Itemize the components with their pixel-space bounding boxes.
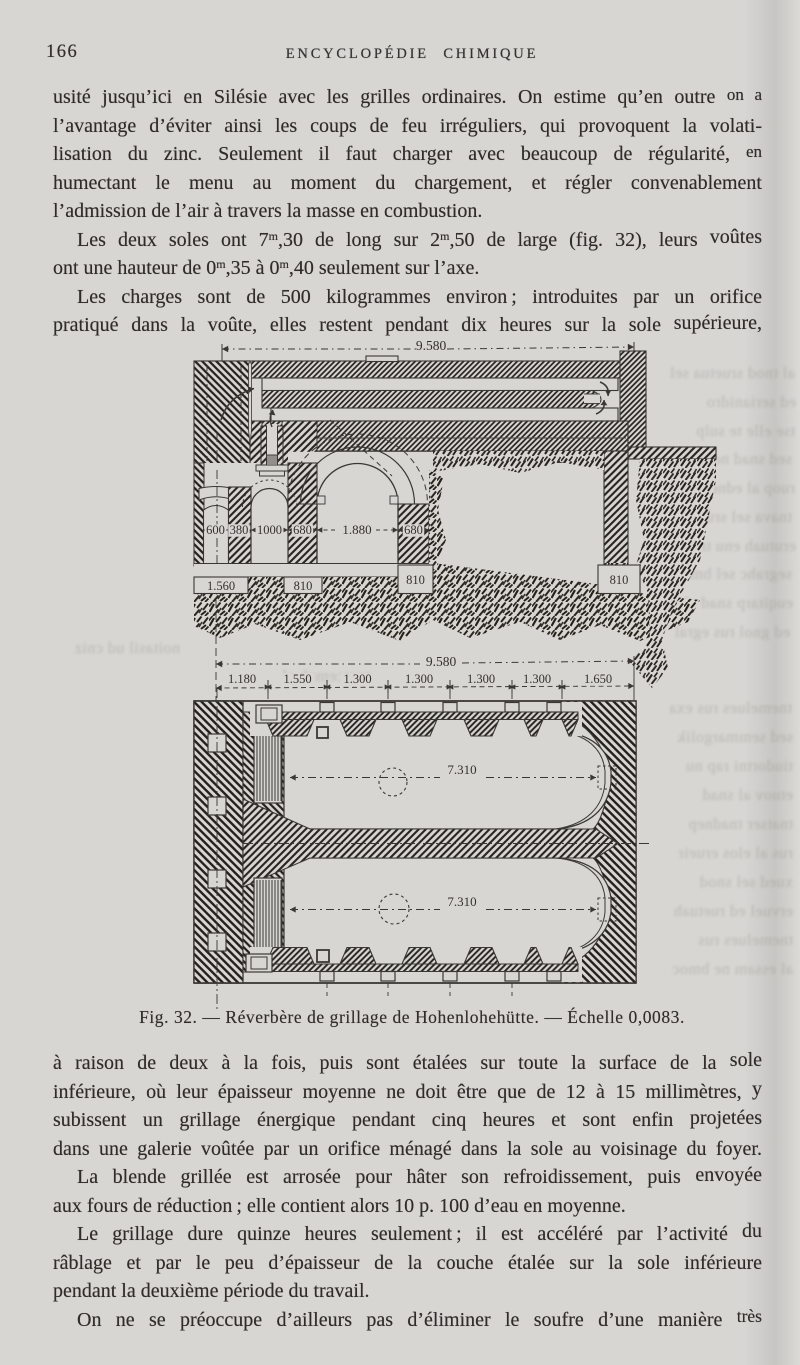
svg-text:810: 810 [610,573,629,587]
svg-text:1.300: 1.300 [405,672,433,686]
svg-text:1.650: 1.650 [584,672,612,686]
svg-text:1.550: 1.550 [283,672,311,686]
svg-text:7.310: 7.310 [447,894,476,909]
svg-text:9.580: 9.580 [426,654,457,669]
svg-text:9.580: 9.580 [416,338,447,353]
svg-text:1.300: 1.300 [523,672,551,686]
svg-text:680: 680 [404,523,423,537]
svg-text:810: 810 [406,573,425,587]
svg-text:1.300: 1.300 [467,672,495,686]
svg-text:600: 600 [206,523,225,537]
svg-text:380: 380 [230,523,249,537]
svg-text:1.300: 1.300 [343,672,371,686]
svg-text:7.310: 7.310 [447,762,476,777]
svg-text:1.880: 1.880 [342,522,371,537]
svg-text:1.560: 1.560 [207,579,235,593]
svg-text:810: 810 [294,579,313,593]
svg-text:680: 680 [293,523,312,537]
svg-text:1000: 1000 [257,523,282,537]
svg-text:1.180: 1.180 [228,672,256,686]
